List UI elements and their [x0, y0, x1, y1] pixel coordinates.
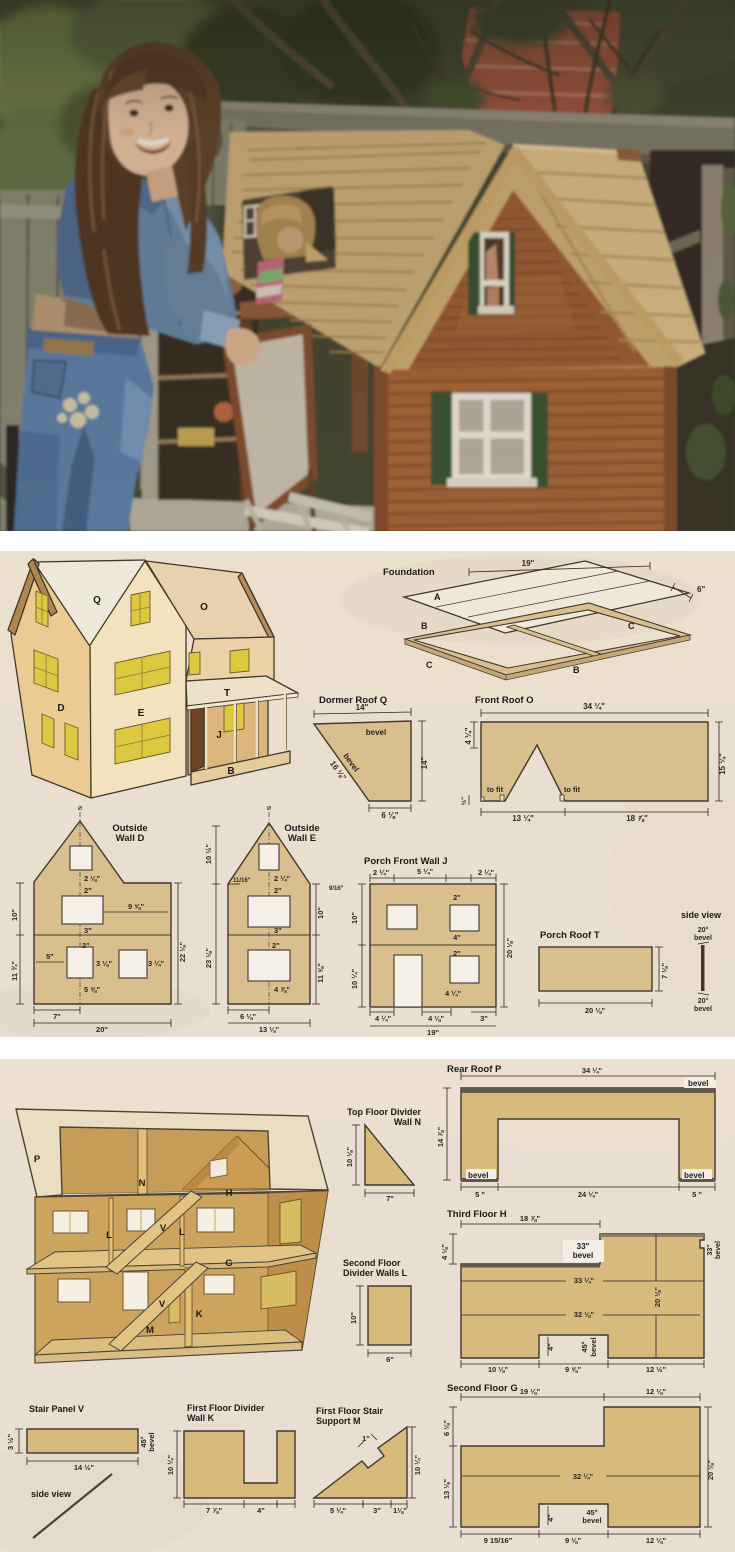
- svg-text:20 ⅛": 20 ⅛": [585, 1006, 606, 1015]
- svg-text:11 ⅝": 11 ⅝": [316, 963, 325, 983]
- svg-text:2": 2": [84, 886, 92, 895]
- svg-text:6 ⅛": 6 ⅛": [442, 1420, 451, 1437]
- svg-text:bevel: bevel: [147, 1432, 156, 1451]
- svg-text:G: G: [225, 1258, 232, 1269]
- svg-text:19 ⅛": 19 ⅛": [520, 1387, 541, 1396]
- svg-text:O: O: [200, 602, 208, 613]
- svg-text:5 ⅝": 5 ⅝": [84, 985, 101, 994]
- svg-text:First Floor Stair: First Floor Stair: [316, 1406, 384, 1416]
- svg-text:32 ⅛": 32 ⅛": [574, 1310, 595, 1319]
- svg-text:Wall N: Wall N: [394, 1117, 421, 1127]
- svg-text:14 ½": 14 ½": [74, 1463, 95, 1472]
- svg-text:9/16": 9/16": [329, 886, 344, 892]
- svg-text:C: C: [426, 660, 433, 670]
- svg-text:2": 2": [82, 941, 90, 950]
- svg-text:V: V: [159, 1299, 166, 1310]
- svg-text:1⅛": 1⅛": [393, 1506, 407, 1515]
- svg-text:2 ⅛": 2 ⅛": [84, 874, 101, 883]
- svg-text:Second Floor G: Second Floor G: [447, 1383, 518, 1394]
- svg-text:20°: 20°: [698, 926, 709, 934]
- svg-text:34 ¼": 34 ¼": [583, 702, 605, 711]
- svg-text:Top Floor Divider: Top Floor Divider: [347, 1107, 421, 1117]
- svg-text:45°: 45°: [580, 1341, 589, 1352]
- svg-text:20°: 20°: [698, 997, 709, 1005]
- svg-text:24 ¼": 24 ¼": [578, 1190, 599, 1199]
- svg-text:10 ¼": 10 ¼": [350, 968, 359, 989]
- svg-text:6": 6": [697, 585, 705, 594]
- svg-text:N: N: [139, 1178, 146, 1189]
- svg-text:bevel: bevel: [468, 1171, 488, 1180]
- svg-text:bevel: bevel: [366, 728, 386, 737]
- svg-text:4": 4": [257, 1506, 265, 1515]
- svg-text:C: C: [628, 621, 635, 631]
- svg-text:2 ¼": 2 ¼": [478, 868, 495, 877]
- svg-text:3": 3": [373, 1506, 381, 1515]
- svg-text:Q: Q: [93, 595, 101, 606]
- svg-text:10": 10": [349, 1312, 358, 1324]
- svg-text:9 ⅝": 9 ⅝": [565, 1365, 582, 1374]
- svg-text:Foundation: Foundation: [383, 567, 435, 578]
- svg-text:34 ¼": 34 ¼": [582, 1066, 603, 1075]
- svg-text:20 ⅛": 20 ⅛": [505, 937, 514, 958]
- svg-text:11 ¾": 11 ¾": [10, 961, 19, 981]
- svg-text:14": 14": [420, 756, 429, 769]
- svg-text:bevel: bevel: [582, 1516, 601, 1525]
- svg-text:M: M: [146, 1325, 154, 1336]
- svg-text:J: J: [216, 730, 222, 741]
- svg-text:6": 6": [386, 1355, 394, 1364]
- svg-text:22 ⅛": 22 ⅛": [178, 941, 187, 962]
- svg-text:10": 10": [350, 912, 359, 924]
- svg-text:bevel: bevel: [573, 1251, 593, 1260]
- svg-text:½": ½": [460, 797, 468, 806]
- svg-text:Stair Panel V: Stair Panel V: [29, 1404, 84, 1414]
- svg-text:33": 33": [707, 1244, 714, 1255]
- svg-text:side view: side view: [681, 910, 722, 920]
- svg-text:K: K: [196, 1309, 203, 1320]
- svg-text:13 ⅛": 13 ⅛": [259, 1025, 280, 1034]
- svg-text:10": 10": [316, 907, 325, 919]
- svg-text:4 ⅞": 4 ⅞": [274, 985, 291, 994]
- svg-text:19": 19": [427, 1028, 439, 1037]
- svg-text:bevel: bevel: [589, 1337, 598, 1356]
- svg-text:5 ": 5 ": [692, 1190, 702, 1199]
- svg-text:3 ¼": 3 ¼": [148, 959, 165, 968]
- svg-text:Rear Roof P: Rear Roof P: [447, 1064, 502, 1075]
- svg-text:H: H: [226, 1188, 233, 1199]
- svg-text:10 ¼": 10 ¼": [413, 1454, 422, 1475]
- svg-text:13 ⅛": 13 ⅛": [442, 1478, 451, 1499]
- svg-text:11/16": 11/16": [233, 878, 251, 884]
- svg-text:D: D: [57, 703, 64, 714]
- svg-text:Front Roof O: Front Roof O: [475, 695, 534, 706]
- svg-text:First Floor Divider: First Floor Divider: [187, 1403, 265, 1413]
- svg-text:A: A: [434, 592, 441, 602]
- svg-text:bevel: bevel: [694, 1006, 712, 1013]
- svg-text:Third Floor H: Third Floor H: [447, 1209, 507, 1220]
- svg-text:33 ¼": 33 ¼": [574, 1276, 595, 1285]
- svg-text:4 ⅛": 4 ⅛": [428, 1014, 445, 1023]
- svg-text:2": 2": [272, 941, 280, 950]
- svg-text:10 ⅛": 10 ⅛": [488, 1365, 509, 1374]
- svg-text:6 ⅛": 6 ⅛": [381, 811, 398, 820]
- svg-text:4": 4": [546, 1514, 555, 1522]
- svg-text:4 ¼": 4 ¼": [375, 1014, 392, 1023]
- svg-text:20 ⅛": 20 ⅛": [706, 1459, 715, 1480]
- svg-text:10 ⅛": 10 ⅛": [345, 1146, 354, 1167]
- svg-text:5 ¼": 5 ¼": [330, 1506, 347, 1515]
- svg-text:side view: side view: [31, 1489, 72, 1499]
- svg-text:2": 2": [453, 949, 461, 958]
- svg-text:12 ⅛": 12 ⅛": [646, 1536, 667, 1545]
- svg-text:4": 4": [546, 1343, 555, 1351]
- svg-text:B: B: [573, 665, 580, 675]
- svg-text:7 ⅞": 7 ⅞": [206, 1506, 223, 1515]
- svg-text:18 ⅞": 18 ⅞": [626, 814, 648, 823]
- svg-text:ø: ø: [78, 805, 83, 812]
- svg-text:3 ⅛": 3 ⅛": [96, 959, 113, 968]
- svg-text:4 ⅛": 4 ⅛": [440, 1244, 449, 1261]
- svg-text:L: L: [179, 1227, 185, 1238]
- svg-text:10 ¼": 10 ¼": [166, 1454, 175, 1475]
- svg-text:V: V: [160, 1223, 167, 1234]
- svg-text:23 ⅛": 23 ⅛": [204, 947, 213, 968]
- svg-text:3": 3": [480, 1014, 488, 1023]
- svg-text:Second Floor: Second Floor: [343, 1258, 401, 1268]
- svg-text:7 ⅛": 7 ⅛": [660, 963, 669, 980]
- svg-text:14": 14": [356, 703, 369, 712]
- svg-text:to fit: to fit: [487, 785, 504, 794]
- svg-text:12 ½": 12 ½": [646, 1365, 667, 1374]
- svg-text:3 ½": 3 ½": [6, 1434, 15, 1451]
- svg-text:7": 7": [386, 1194, 394, 1203]
- svg-text:4 ¼": 4 ¼": [464, 727, 473, 744]
- svg-text:3": 3": [84, 926, 92, 935]
- svg-text:7": 7": [53, 1012, 61, 1021]
- svg-text:T: T: [224, 688, 230, 699]
- svg-text:18 ⅞": 18 ⅞": [520, 1214, 541, 1223]
- svg-text:10 ½": 10 ½": [204, 843, 213, 864]
- svg-text:20 ⅛": 20 ⅛": [653, 1286, 662, 1307]
- svg-text:32 ¼": 32 ¼": [573, 1472, 594, 1481]
- svg-text:33": 33": [577, 1242, 590, 1251]
- svg-text:B: B: [227, 766, 234, 777]
- svg-text:1": 1": [362, 1434, 370, 1443]
- svg-text:3": 3": [274, 926, 282, 935]
- svg-text:19": 19": [522, 559, 535, 568]
- svg-text:Wall E: Wall E: [288, 833, 316, 844]
- svg-text:Divider Walls L: Divider Walls L: [343, 1268, 408, 1278]
- svg-text:4 ¼": 4 ¼": [445, 989, 462, 998]
- svg-text:P: P: [34, 1154, 41, 1165]
- svg-text:9 ⅛": 9 ⅛": [565, 1536, 582, 1545]
- svg-text:4": 4": [453, 933, 461, 942]
- svg-text:10": 10": [10, 909, 19, 921]
- svg-text:bevel: bevel: [694, 935, 712, 942]
- svg-text:Wall D: Wall D: [116, 833, 145, 844]
- svg-text:B: B: [421, 621, 428, 631]
- svg-text:Porch Front Wall J: Porch Front Wall J: [364, 856, 448, 867]
- svg-text:Porch Roof T: Porch Roof T: [540, 930, 600, 941]
- svg-text:2 ¼": 2 ¼": [274, 874, 291, 883]
- svg-text:Dormer Roof Q: Dormer Roof Q: [319, 695, 387, 706]
- svg-text:14 ⅞": 14 ⅞": [436, 1126, 445, 1147]
- svg-text:L: L: [106, 1230, 112, 1241]
- svg-text:bevel: bevel: [715, 1241, 722, 1259]
- svg-text:5 ": 5 ": [475, 1190, 485, 1199]
- svg-text:20": 20": [96, 1025, 108, 1034]
- svg-text:ø: ø: [267, 805, 272, 812]
- svg-text:2": 2": [274, 886, 282, 895]
- svg-text:13 ¼": 13 ¼": [512, 814, 534, 823]
- svg-text:12 ⅛": 12 ⅛": [646, 1387, 667, 1396]
- svg-text:to fit: to fit: [564, 785, 581, 794]
- svg-text:9 15/16": 9 15/16": [484, 1536, 513, 1545]
- svg-text:2": 2": [453, 893, 461, 902]
- svg-text:bevel: bevel: [684, 1171, 704, 1180]
- svg-text:Wall K: Wall K: [187, 1413, 215, 1423]
- svg-text:9 ⅝": 9 ⅝": [128, 902, 145, 911]
- svg-text:15 ¼": 15 ¼": [718, 753, 727, 775]
- svg-text:5 ¼": 5 ¼": [417, 867, 434, 876]
- svg-text:Support M: Support M: [316, 1416, 361, 1426]
- svg-text:5": 5": [46, 952, 54, 961]
- svg-text:2 ¼": 2 ¼": [373, 868, 390, 877]
- svg-text:bevel: bevel: [688, 1079, 708, 1088]
- svg-text:6 ⅛": 6 ⅛": [240, 1012, 257, 1021]
- svg-text:E: E: [138, 708, 145, 719]
